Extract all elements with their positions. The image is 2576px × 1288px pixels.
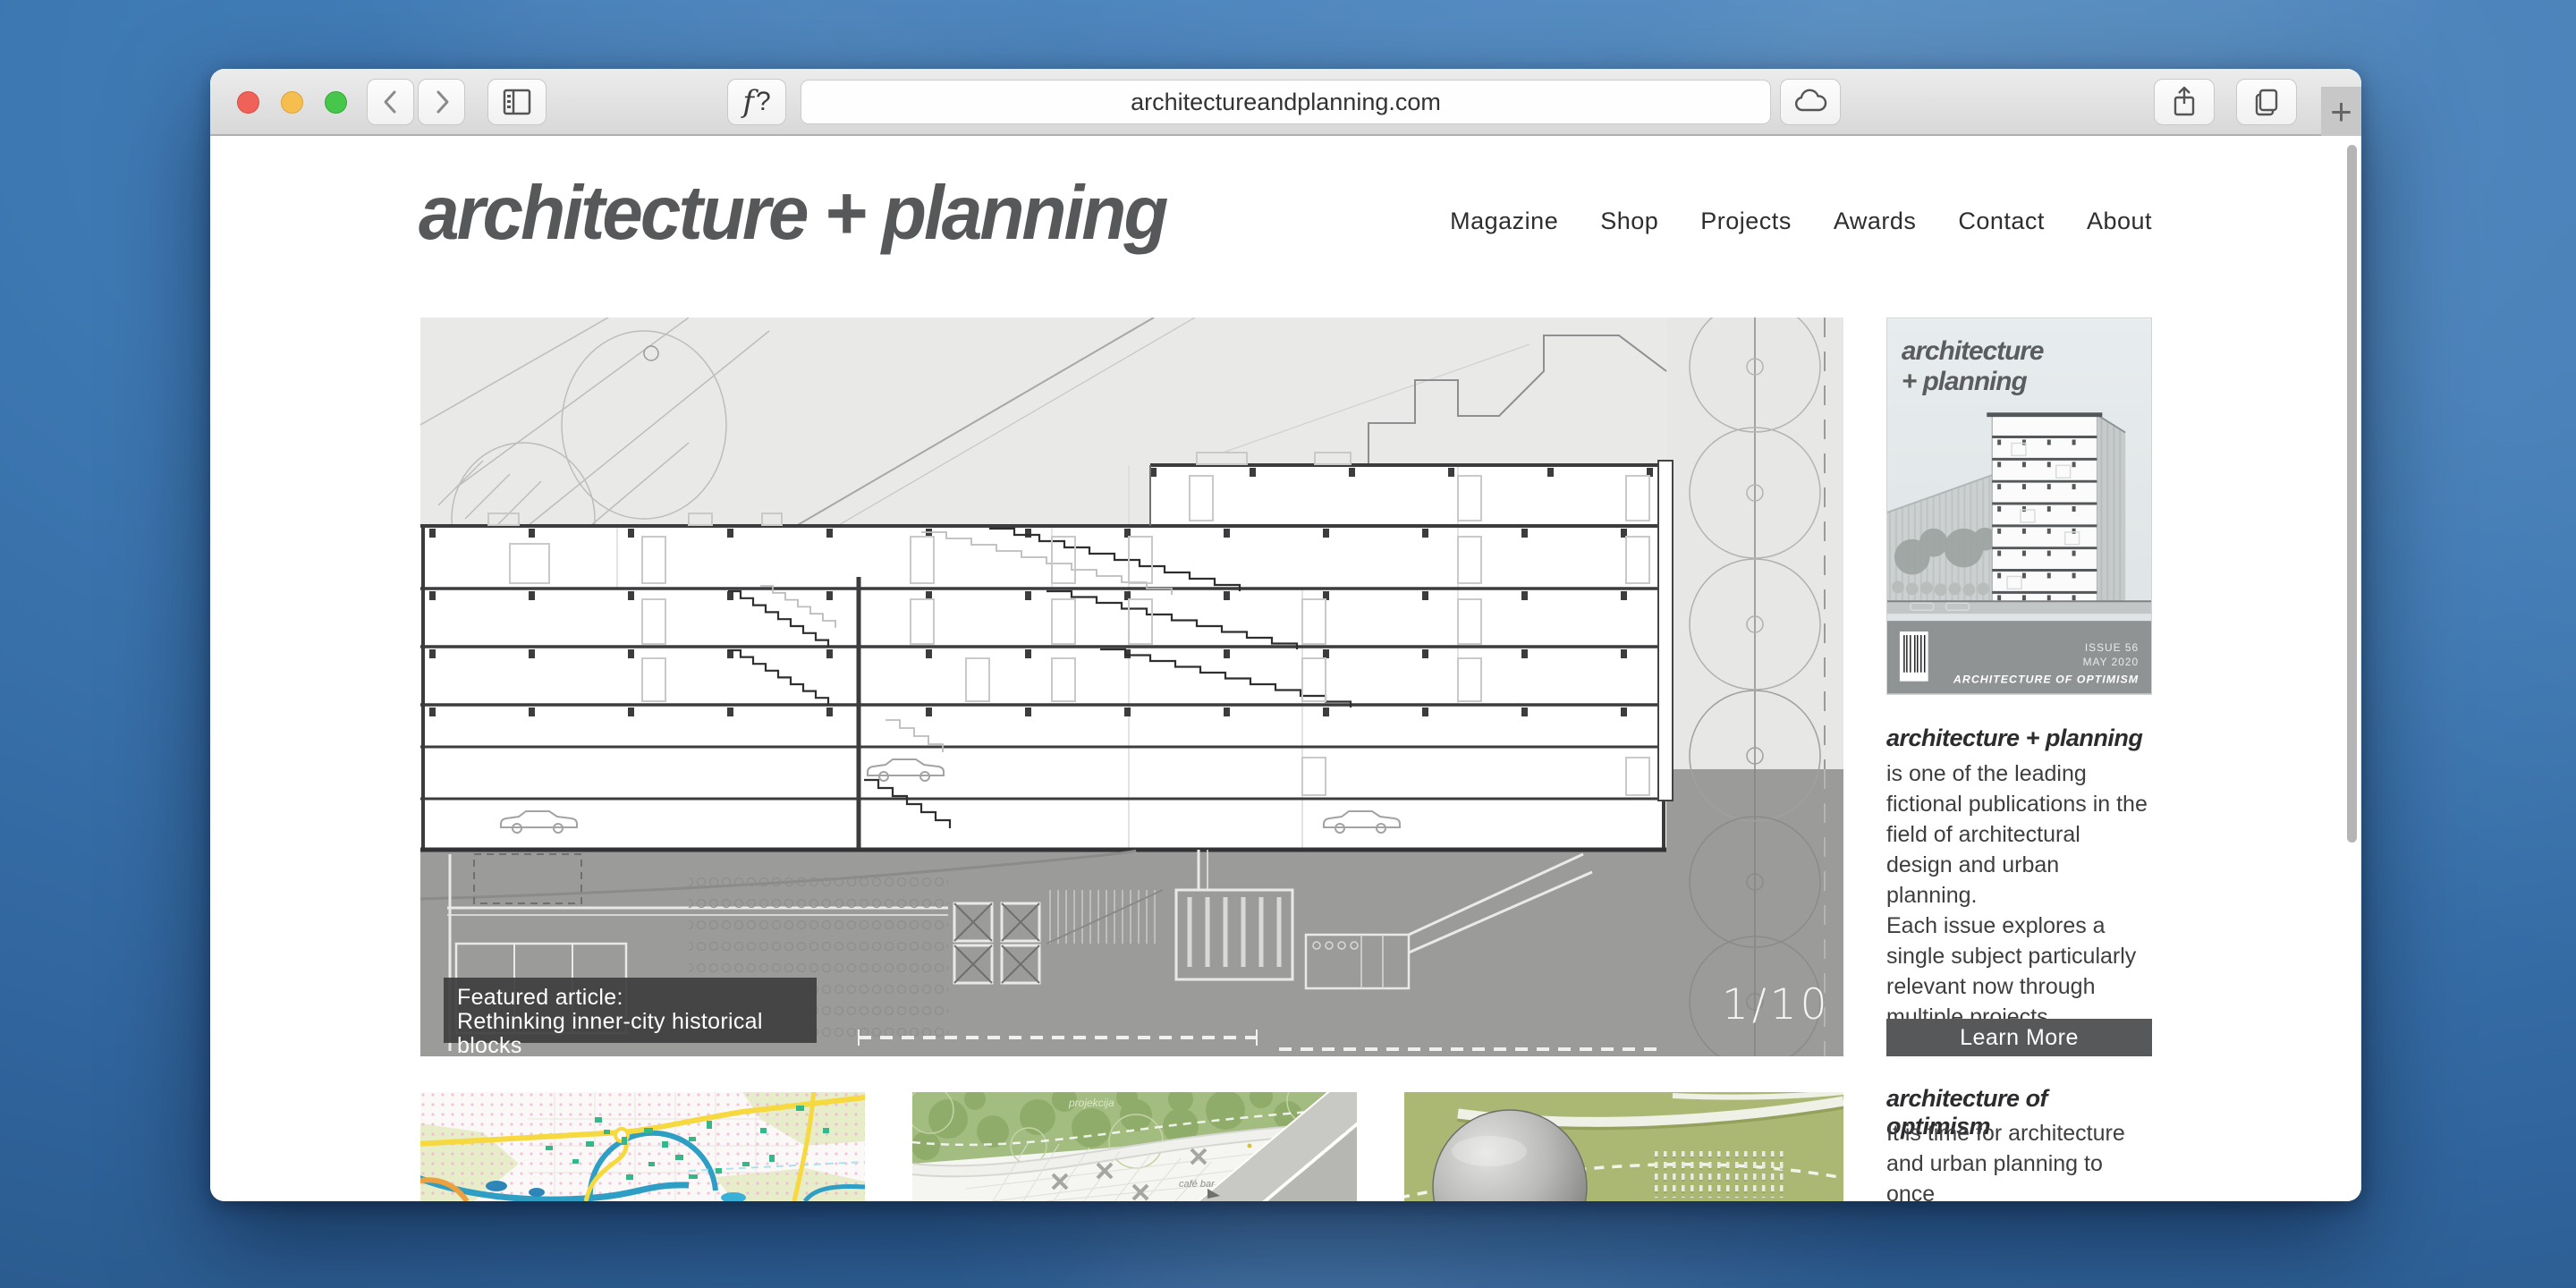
nav-shop[interactable]: Shop [1600,208,1658,235]
page-icon-button[interactable]: f? [727,79,786,125]
share-icon [2170,86,2199,118]
cover-logo-line1: architecture [1902,336,2044,366]
learn-more-button[interactable]: Learn More [1886,1019,2152,1056]
icloud-tabs-button[interactable] [1780,79,1841,125]
slide-counter: 1/10 [1722,980,1838,1030]
zoom-button[interactable] [325,91,347,114]
new-tab-button[interactable]: + [2321,87,2361,136]
tabs-overview-icon [2251,87,2282,117]
magazine-cover[interactable]: architecture + planning ISSUE 56 MAY 202… [1886,318,2152,695]
thumbnail-city-map[interactable] [420,1092,865,1201]
feature-text: It is time for architecture and urban pl… [1886,1118,2152,1201]
featured-caption-line1: Featured article: [457,986,803,1010]
question-glyph: ? [756,87,771,117]
nav-awards[interactable]: Awards [1834,208,1917,235]
cloud-icon [1792,88,1828,116]
nav-projects[interactable]: Projects [1700,208,1792,235]
back-button[interactable] [367,79,414,125]
browser-window: f? architectureandplanning.com + archite… [210,69,2361,1201]
cover-theme: ARCHITECTURE OF OPTIMISM [1953,674,2139,686]
address-bar[interactable]: architectureandplanning.com [801,80,1771,124]
nav-about[interactable]: About [2087,208,2152,235]
cover-issue: ISSUE 56 [2085,641,2139,654]
tab-overview-button[interactable] [2236,79,2297,125]
browser-toolbar: f? architectureandplanning.com + [210,69,2361,136]
park-plan-label: projekcija [1068,1097,1114,1109]
cover-logo-line2: + planning [1902,367,2028,396]
about-text: is one of the leading fictional publicat… [1886,758,2152,1032]
close-button[interactable] [237,91,259,114]
cover-date: MAY 2020 [2083,656,2139,668]
thumbnail-park-plan[interactable]: projekcija café bar [912,1092,1357,1201]
sidebar-toggle-button[interactable] [487,79,547,125]
featured-slide-image[interactable] [420,318,1843,1056]
featured-caption: Featured article: Rethinking inner-city … [444,978,817,1043]
main-navigation: Magazine Shop Projects Awards Contact Ab… [1450,208,2152,235]
thumbnail-dome-render[interactable] [1404,1092,1843,1201]
nav-magazine[interactable]: Magazine [1450,208,1558,235]
share-button[interactable] [2154,79,2215,125]
italic-f-icon: f [742,84,754,120]
sidebar-toggle-icon [502,88,532,116]
minimize-button[interactable] [281,91,303,114]
nav-contact[interactable]: Contact [1958,208,2045,235]
about-heading: architecture + planning [1886,724,2142,752]
webpage: architecture + planning Magazine Shop Pr… [210,136,2361,1201]
cafe-bar-label: café bar [1179,1179,1216,1190]
forward-chevron-icon [430,89,453,115]
featured-caption-line2: Rethinking inner-city historical blocks [457,1010,803,1058]
back-chevron-icon [379,89,402,115]
forward-button[interactable] [418,79,465,125]
scrollbar-thumb[interactable] [2347,145,2357,843]
site-logo[interactable]: architecture + planning [419,170,1165,258]
